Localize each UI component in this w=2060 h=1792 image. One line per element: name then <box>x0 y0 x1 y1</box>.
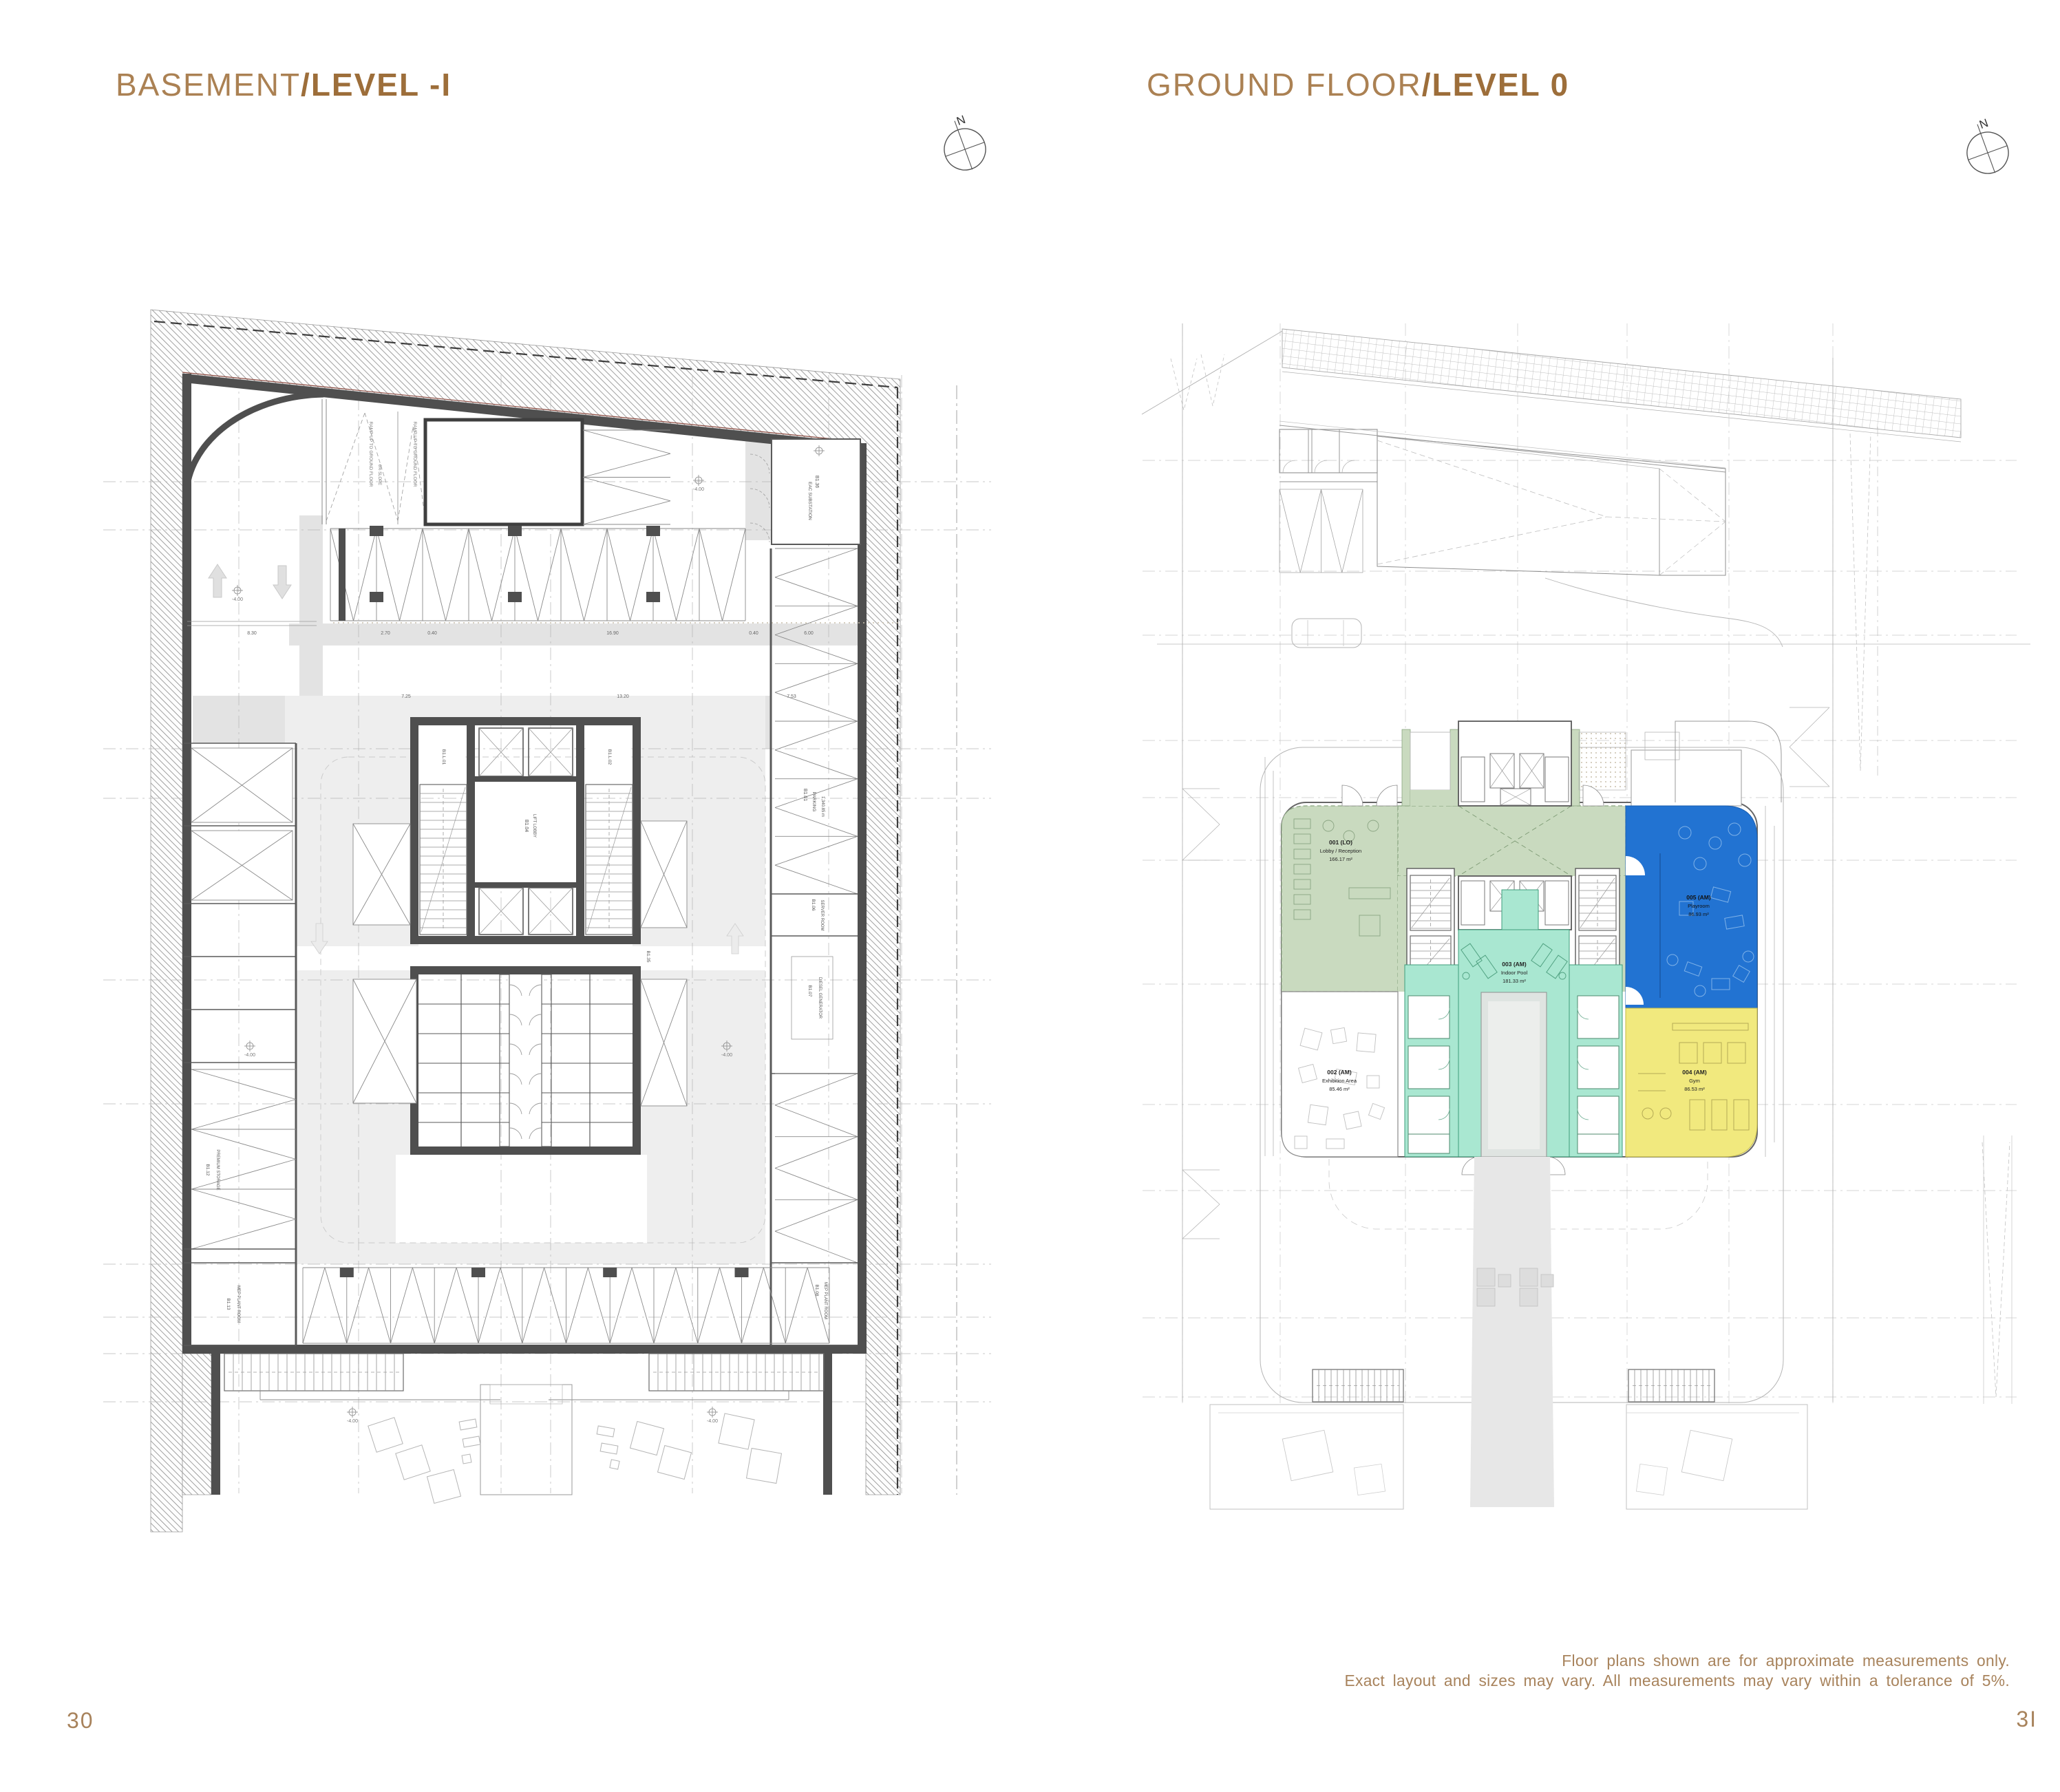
svg-text:13.20: 13.20 <box>617 694 629 699</box>
svg-text:Indoor Pool: Indoor Pool <box>1501 970 1528 976</box>
svg-text:Gym: Gym <box>1689 1078 1700 1084</box>
svg-text:86.53 m²: 86.53 m² <box>1684 1086 1705 1092</box>
svg-text:86.93 m²: 86.93 m² <box>1688 911 1709 917</box>
svg-text:-4.00: -4.00 <box>721 1053 732 1058</box>
svg-text:-4.00: -4.00 <box>707 1419 718 1424</box>
svg-text:16.90: 16.90 <box>606 631 619 636</box>
svg-text:3I: 3I <box>2016 1707 2037 1731</box>
svg-text:8.30: 8.30 <box>247 631 257 636</box>
svg-text:B1.13: B1.13 <box>226 1299 231 1310</box>
svg-text:2.70: 2.70 <box>381 631 390 636</box>
svg-text:Playroom: Playroom <box>1688 903 1710 909</box>
svg-text:Floor plans shown are for appr: Floor plans shown are for approximate me… <box>1562 1652 2010 1670</box>
svg-text:7.25: 7.25 <box>401 694 411 699</box>
svg-text:EAC SUBSTATION: EAC SUBSTATION <box>807 482 812 520</box>
svg-text:-4.00: -4.00 <box>347 1419 358 1424</box>
svg-text:B1.04: B1.04 <box>524 820 529 832</box>
svg-text:DIESEL GENERATOR: DIESEL GENERATOR <box>818 977 822 1019</box>
svg-text:6% SLOPE: 6% SLOPE <box>377 465 381 485</box>
svg-text:0.40: 0.40 <box>427 631 437 636</box>
svg-text:-4.00: -4.00 <box>232 597 243 602</box>
svg-text:Lobby / Reception: Lobby / Reception <box>1320 848 1361 854</box>
svg-text:SERVER ROOM: SERVER ROOM <box>820 900 824 931</box>
svg-text:PREMIUM STORAGE: PREMIUM STORAGE <box>215 1149 220 1190</box>
svg-text:Exhibition Area: Exhibition Area <box>1322 1078 1357 1084</box>
svg-text:B1.L.02: B1.L.02 <box>607 749 612 765</box>
svg-text:LIFT LOBBY: LIFT LOBBY <box>532 814 536 838</box>
svg-text:B1.07: B1.07 <box>807 985 812 997</box>
svg-text:B1.L.01: B1.L.01 <box>441 749 446 765</box>
svg-text:RAMP UP TO GROUND FLOOR: RAMP UP TO GROUND FLOOR <box>412 422 417 487</box>
svg-text:002 (AM): 002 (AM) <box>1327 1069 1352 1076</box>
svg-text:B1.06: B1.06 <box>811 899 816 911</box>
svg-text:003 (AM): 003 (AM) <box>1502 961 1527 968</box>
svg-text:-4.00: -4.00 <box>244 1053 255 1058</box>
svg-text:MEP PLANT ROOM: MEP PLANT ROOM <box>823 1282 827 1319</box>
svg-text:RAMP UP TO GROUND FLOOR: RAMP UP TO GROUND FLOOR <box>368 422 373 487</box>
svg-text:004 (AM): 004 (AM) <box>1682 1069 1707 1076</box>
svg-text:Exact layout and sizes may var: Exact layout and sizes may vary. All mea… <box>1345 1672 2010 1689</box>
svg-text:6.00: 6.00 <box>804 631 814 636</box>
svg-text:7.53: 7.53 <box>787 694 796 699</box>
svg-text:-4.00: -4.00 <box>693 487 704 492</box>
svg-text:1,340.85 m: 1,340.85 m <box>820 796 825 817</box>
svg-text:005 (AM): 005 (AM) <box>1686 894 1711 901</box>
svg-text:PARKING: PARKING <box>811 792 816 812</box>
svg-text:166.17 m²: 166.17 m² <box>1329 856 1352 862</box>
svg-text:MEP PLANT ROOM: MEP PLANT ROOM <box>236 1286 240 1323</box>
svg-text:001 (LO): 001 (LO) <box>1329 839 1352 846</box>
svg-text:B1.01: B1.01 <box>803 789 807 801</box>
svg-text:181.33 m²: 181.33 m² <box>1502 978 1526 984</box>
svg-text:B1.36: B1.36 <box>814 476 819 488</box>
svg-text:B1.12: B1.12 <box>205 1164 210 1176</box>
svg-text:30: 30 <box>67 1708 94 1733</box>
svg-text:B1.35: B1.35 <box>646 951 650 963</box>
svg-text:GROUND FLOOR/LEVEL 0: GROUND FLOOR/LEVEL 0 <box>1147 67 1569 103</box>
svg-text:0.40: 0.40 <box>749 631 758 636</box>
svg-text:BASEMENT/LEVEL -I: BASEMENT/LEVEL -I <box>116 67 452 103</box>
svg-text:85.46 m²: 85.46 m² <box>1329 1086 1350 1092</box>
